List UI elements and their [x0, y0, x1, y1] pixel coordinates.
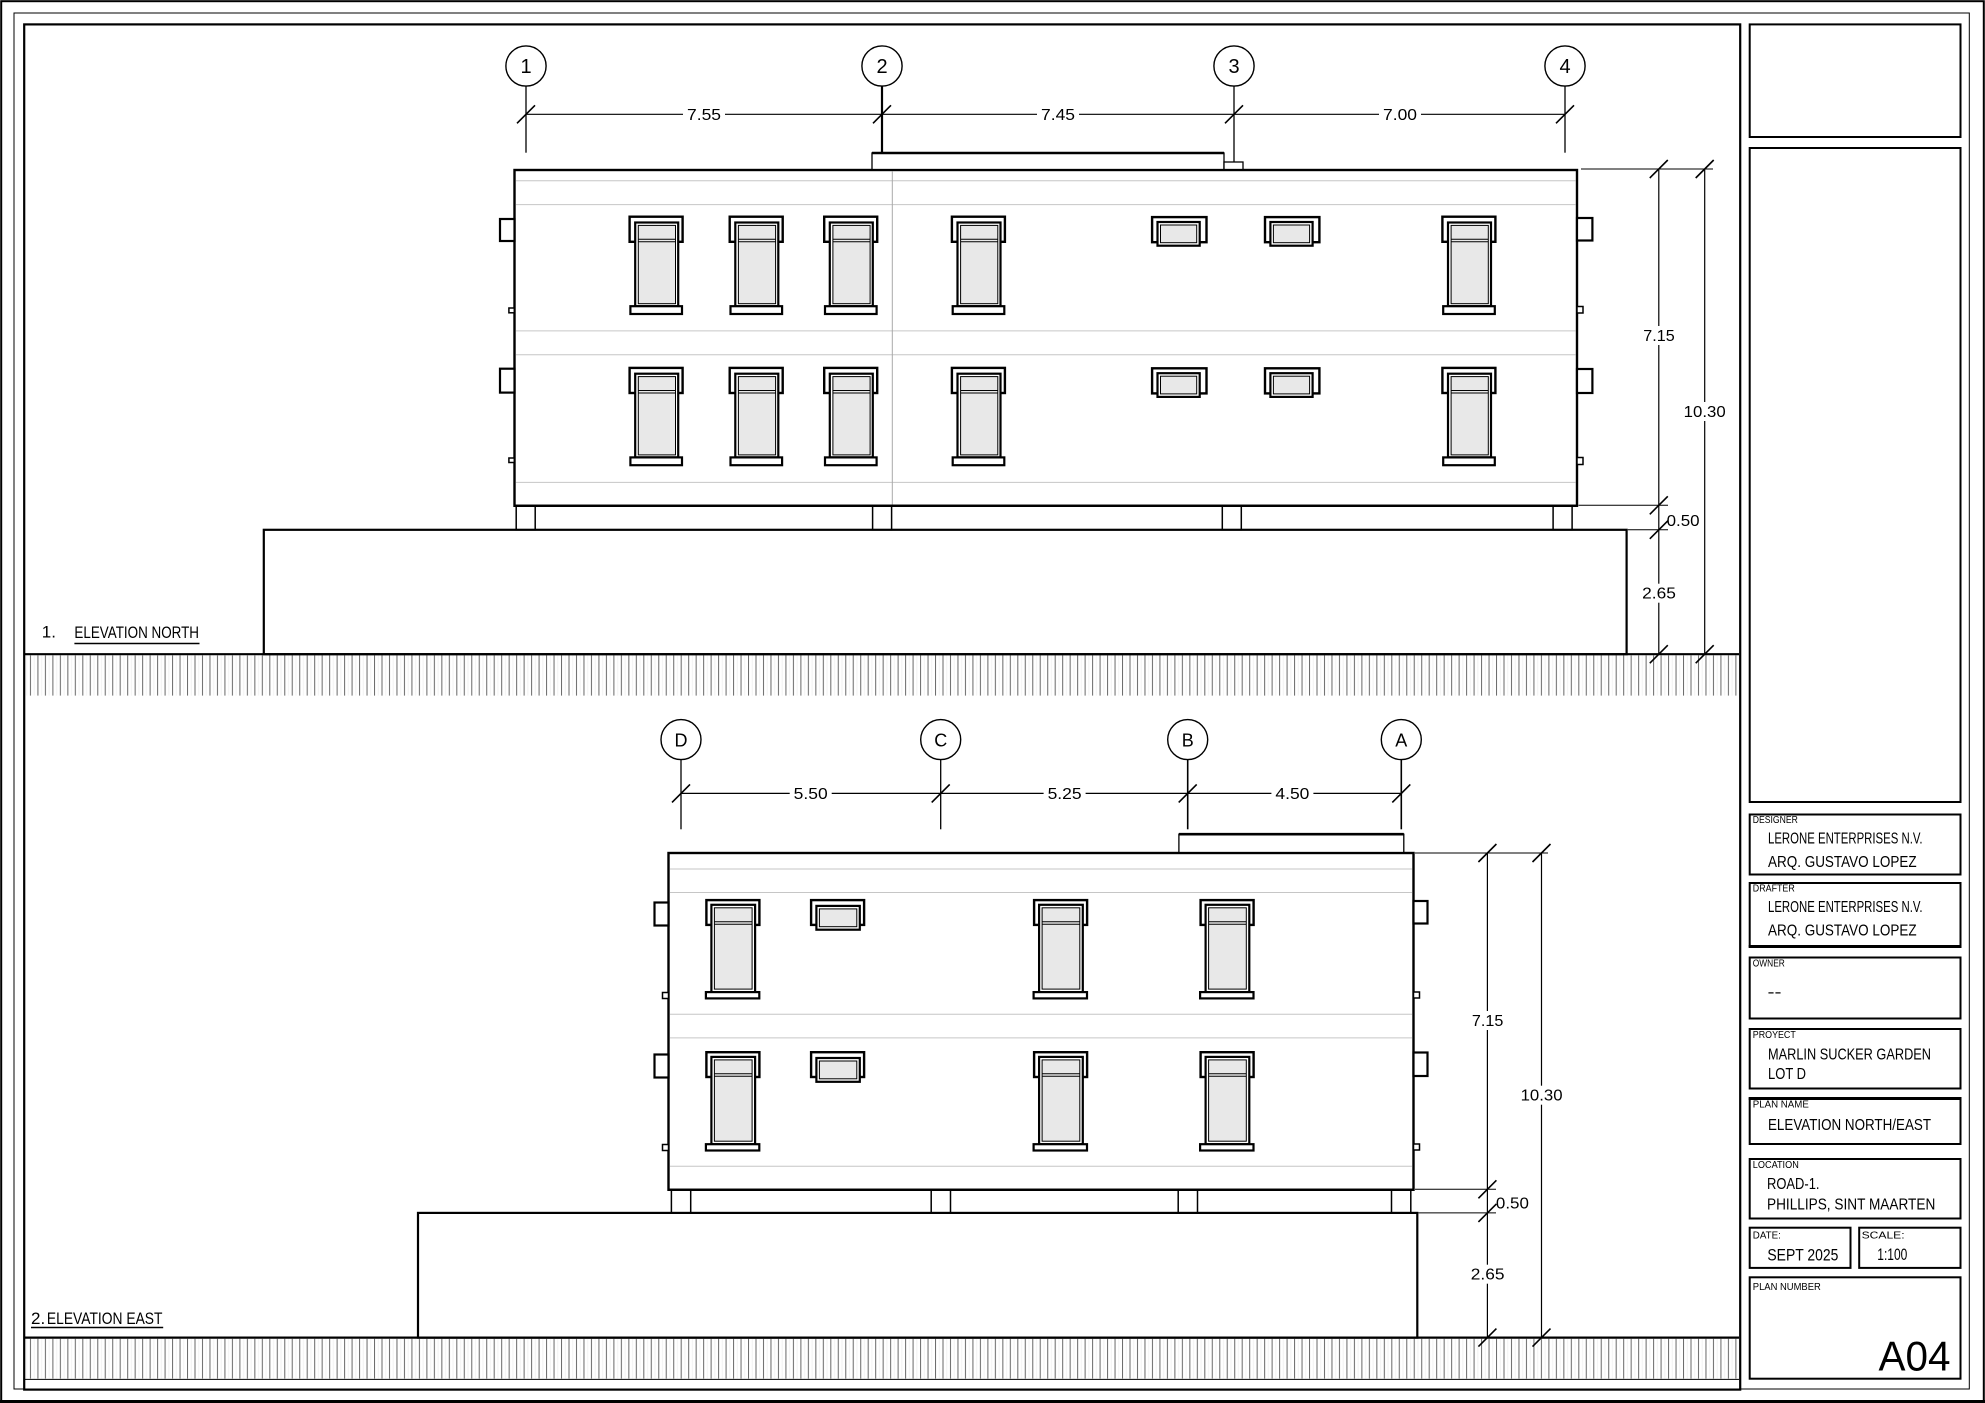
svg-text:C: C: [934, 731, 947, 751]
svg-text:PROYECT: PROYECT: [1753, 1030, 1796, 1041]
svg-text:7.15: 7.15: [1643, 328, 1675, 345]
svg-text:SCALE:: SCALE:: [1862, 1230, 1905, 1241]
svg-text:1: 1: [520, 56, 531, 78]
svg-text:10.30: 10.30: [1521, 1088, 1563, 1105]
svg-text:4: 4: [1559, 56, 1570, 78]
svg-text:--: --: [1768, 984, 1782, 1001]
svg-text:2.: 2.: [31, 1309, 45, 1328]
svg-text:0.50: 0.50: [1496, 1196, 1529, 1213]
svg-text:0.50: 0.50: [1667, 513, 1700, 530]
svg-text:PLAN NUMBER: PLAN NUMBER: [1753, 1282, 1821, 1293]
svg-text:ARQ. GUSTAVO LOPEZ: ARQ. GUSTAVO LOPEZ: [1768, 854, 1917, 871]
svg-text:D: D: [675, 731, 688, 751]
svg-text:4.50: 4.50: [1275, 786, 1309, 803]
svg-text:LOT D: LOT D: [1768, 1066, 1806, 1083]
svg-text:LERONE ENTERPRISES N.V.: LERONE ENTERPRISES N.V.: [1768, 831, 1923, 848]
svg-text:7.45: 7.45: [1041, 107, 1075, 124]
svg-text:OWNER: OWNER: [1753, 959, 1785, 970]
svg-text:A04: A04: [1879, 1333, 1951, 1380]
svg-text:LERONE ENTERPRISES N.V.: LERONE ENTERPRISES N.V.: [1768, 899, 1923, 916]
svg-text:ELEVATION NORTH: ELEVATION NORTH: [74, 623, 199, 642]
svg-text:ELEVATION EAST: ELEVATION EAST: [47, 1309, 163, 1328]
svg-text:ARQ. GUSTAVO LOPEZ: ARQ. GUSTAVO LOPEZ: [1768, 923, 1917, 940]
svg-text:7.55: 7.55: [687, 107, 721, 124]
svg-text:5.50: 5.50: [794, 786, 828, 803]
svg-text:ELEVATION NORTH/EAST: ELEVATION NORTH/EAST: [1768, 1117, 1931, 1134]
svg-text:A: A: [1395, 731, 1407, 751]
svg-text:ROAD-1.: ROAD-1.: [1767, 1176, 1820, 1193]
svg-text:2.65: 2.65: [1642, 586, 1676, 603]
svg-text:DESIGNER: DESIGNER: [1753, 815, 1798, 826]
svg-text:DATE:: DATE:: [1753, 1230, 1781, 1241]
svg-text:5.25: 5.25: [1048, 786, 1082, 803]
svg-text:3: 3: [1228, 56, 1239, 78]
svg-text:2.65: 2.65: [1471, 1267, 1505, 1284]
svg-text:SEPT 2025: SEPT 2025: [1767, 1246, 1838, 1265]
svg-text:7.00: 7.00: [1383, 107, 1417, 124]
svg-text:1:100: 1:100: [1877, 1245, 1907, 1264]
svg-text:1.: 1.: [42, 623, 56, 642]
svg-text:MARLIN SUCKER GARDEN: MARLIN SUCKER GARDEN: [1768, 1047, 1931, 1064]
svg-text:LOCATION: LOCATION: [1753, 1160, 1799, 1171]
svg-text:B: B: [1182, 731, 1194, 751]
svg-text:10.30: 10.30: [1684, 404, 1726, 421]
svg-text:PHILLIPS, SINT MAARTEN: PHILLIPS, SINT MAARTEN: [1767, 1197, 1935, 1214]
svg-text:PLAN NAME: PLAN NAME: [1753, 1100, 1809, 1111]
svg-text:DRAFTER: DRAFTER: [1753, 884, 1795, 895]
svg-text:2: 2: [876, 56, 887, 78]
svg-text:7.15: 7.15: [1472, 1013, 1504, 1030]
